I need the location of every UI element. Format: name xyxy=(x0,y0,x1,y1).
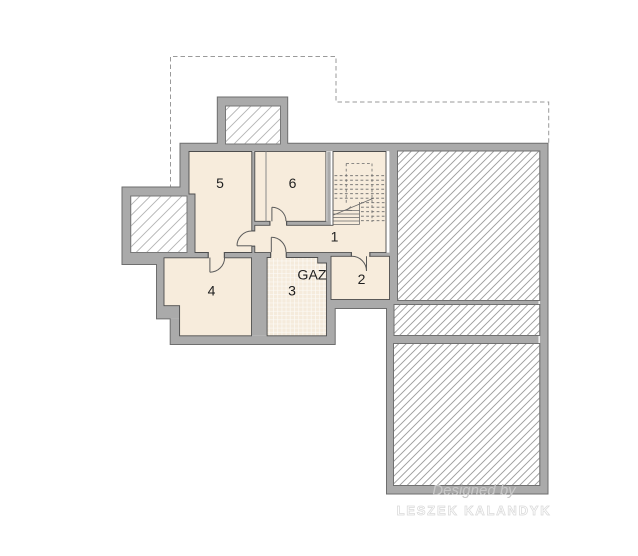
svg-text:2: 2 xyxy=(358,271,366,287)
svg-text:Designed by: Designed by xyxy=(432,482,517,499)
svg-text:GAZ: GAZ xyxy=(297,267,326,283)
svg-text:3: 3 xyxy=(288,282,296,298)
svg-text:1: 1 xyxy=(331,229,339,245)
svg-text:LESZEK KALANDYK: LESZEK KALANDYK xyxy=(397,503,552,518)
svg-text:6: 6 xyxy=(289,175,297,191)
svg-text:4: 4 xyxy=(208,282,216,298)
svg-text:5: 5 xyxy=(216,175,224,191)
